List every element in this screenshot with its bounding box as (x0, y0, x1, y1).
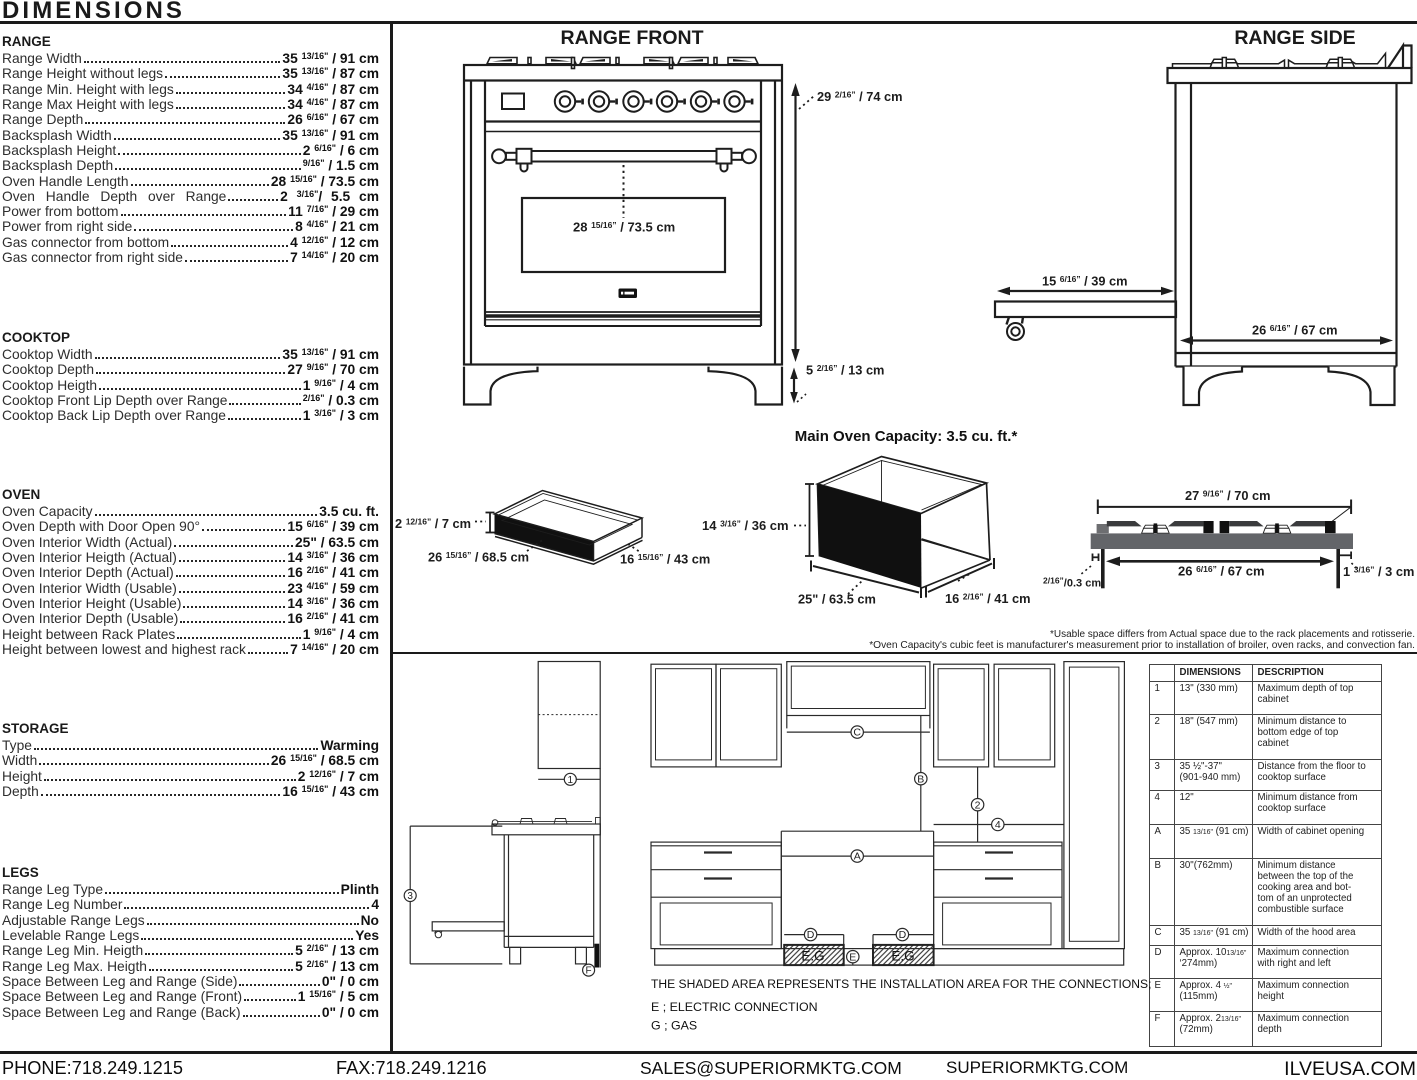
svg-text:26 6/16” / 67 cm: 26 6/16” / 67 cm (1178, 564, 1265, 579)
svg-text:27 9/16” / 70 cm: 27 9/16” / 70 cm (1185, 488, 1271, 503)
svg-text:D: D (807, 929, 815, 941)
svg-text:C: C (853, 727, 861, 739)
svg-text:B: B (917, 773, 924, 785)
svg-text:D: D (899, 929, 907, 941)
svg-text:E ; ELECTRIC CONNECTION: E ; ELECTRIC CONNECTION (651, 1000, 818, 1014)
svg-text:2 12/16” / 7 cm: 2 12/16” / 7 cm (395, 516, 471, 531)
svg-text:29 2/16” / 74 cm: 29 2/16” / 74 cm (817, 89, 903, 104)
svg-text:E: E (849, 951, 856, 963)
svg-text:2: 2 (975, 799, 981, 811)
svg-text:E.G: E.G (801, 949, 824, 964)
svg-text:E.G: E.G (891, 949, 914, 964)
svg-text:4: 4 (995, 819, 1001, 831)
svg-text:28 15/16” / 73.5 cm: 28 15/16” / 73.5 cm (573, 220, 675, 235)
svg-text:16 15/16” / 43 cm: 16 15/16” / 43 cm (620, 552, 710, 567)
svg-text:F: F (586, 966, 592, 977)
svg-text:3: 3 (407, 891, 413, 902)
svg-text:16 2/16” / 41 cm: 16 2/16” / 41 cm (945, 591, 1031, 606)
svg-text:A: A (854, 851, 861, 863)
svg-text:5 2/16” / 13 cm: 5 2/16” / 13 cm (806, 363, 884, 378)
svg-text:26 15/16” / 68.5 cm: 26 15/16” / 68.5 cm (428, 550, 529, 565)
svg-text:25" / 63.5 cm: 25" / 63.5 cm (798, 592, 876, 607)
svg-text:26 6/16” / 67 cm: 26 6/16” / 67 cm (1252, 323, 1338, 338)
svg-text:1 3/16” / 3 cm: 1 3/16” / 3 cm (1343, 564, 1414, 579)
svg-text:1: 1 (568, 775, 574, 786)
svg-text:G ; GAS: G ; GAS (651, 1019, 697, 1033)
svg-text:2/16”/0.3 cm: 2/16”/0.3 cm (1043, 576, 1101, 590)
svg-text:14 3/16” / 36 cm: 14 3/16” / 36 cm (702, 518, 789, 533)
svg-text:15 6/16” / 39 cm: 15 6/16” / 39 cm (1042, 274, 1128, 289)
svg-text:THE SHADED AREA REPRESENTS THE: THE SHADED AREA REPRESENTS THE INSTALLAT… (651, 977, 1151, 991)
